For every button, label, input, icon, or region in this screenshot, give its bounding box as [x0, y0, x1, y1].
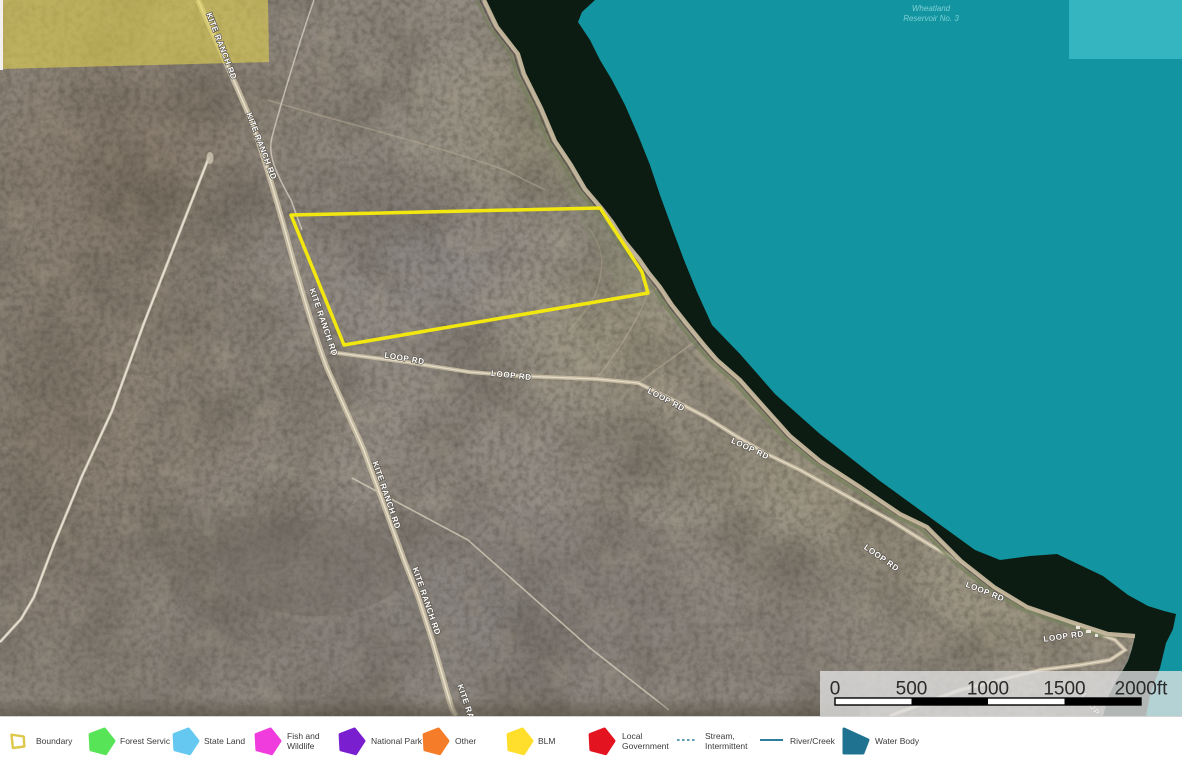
svg-text:1500: 1500: [1043, 679, 1085, 700]
svg-text:Wheatland: Wheatland: [912, 4, 951, 13]
svg-text:2000ft: 2000ft: [1115, 679, 1169, 700]
svg-text:1000: 1000: [967, 679, 1009, 700]
svg-text:0: 0: [830, 679, 841, 700]
svg-text:Reservoir No. 3: Reservoir No. 3: [903, 14, 959, 23]
svg-text:500: 500: [896, 679, 928, 700]
